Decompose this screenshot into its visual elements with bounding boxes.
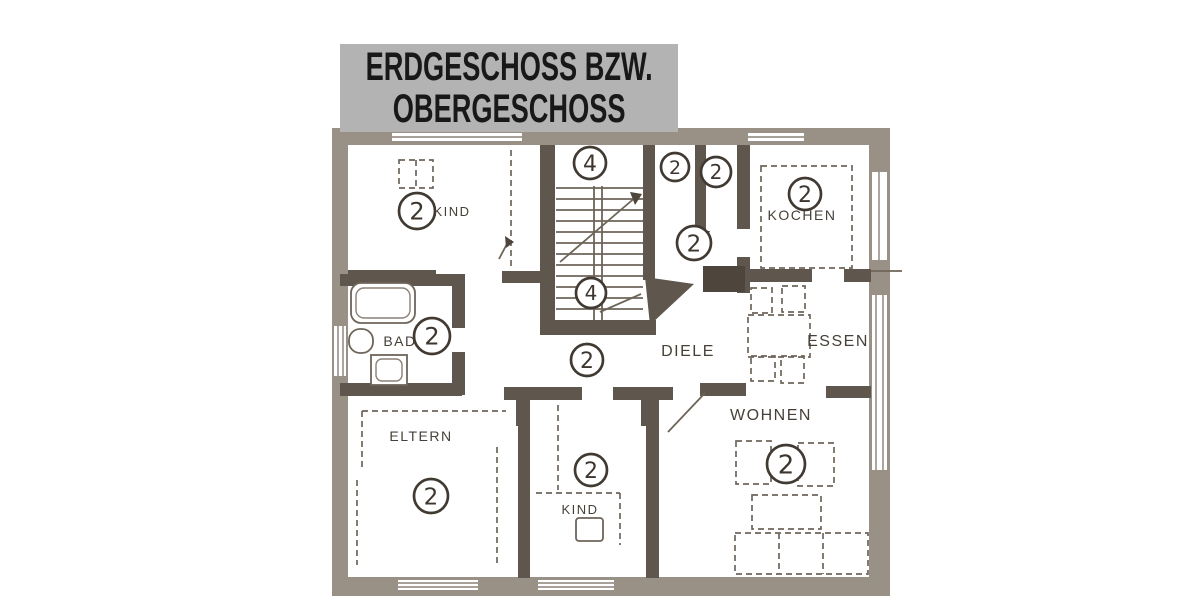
furniture-essen (748, 286, 810, 383)
marker-number: 2 (424, 484, 439, 510)
marker-number: 2 (687, 231, 702, 257)
marker-number: 2 (424, 323, 439, 351)
room-label-kind-bottom: KIND (561, 502, 598, 517)
page: KINDKOCHENBADDIELEESSENELTERNKINDWOHNEN … (0, 0, 1200, 600)
marker-eltern: 2 (414, 479, 448, 513)
furniture-kind-top (399, 160, 433, 188)
marker-number: 4 (583, 152, 597, 177)
marker-number: 2 (584, 459, 598, 484)
marker-wohnen: 2 (767, 445, 805, 483)
room-label-diele: DIELE (661, 343, 715, 360)
marker-number: 2 (778, 450, 795, 480)
room-label-kind-top: KIND (433, 204, 470, 219)
room-label-essen: ESSEN (807, 333, 869, 350)
marker-number: 2 (580, 349, 594, 374)
marker-number: 2 (710, 160, 723, 184)
marker-number: 2 (409, 198, 424, 226)
room-label-eltern: ELTERN (389, 428, 452, 444)
marker-hall: 2 (677, 226, 711, 260)
marker-bad: 2 (414, 318, 450, 354)
title-line-1: ERDGESCHOSS BZW. (365, 46, 652, 88)
marker-stairs-top: 4 (574, 147, 606, 179)
marker-number: 2 (798, 183, 812, 208)
marker-kochen: 2 (789, 178, 821, 210)
room-label-wohnen: WOHNEN (730, 407, 812, 424)
title-banner: ERDGESCHOSS BZW. OBERGESCHOSS (340, 44, 678, 132)
marker-number: 4 (585, 281, 598, 305)
room-label-bad: BAD (383, 333, 416, 349)
marker-stairs-bottom: 4 (576, 278, 606, 308)
marker-diele: 2 (571, 344, 603, 376)
marker-wc-right: 2 (701, 157, 731, 187)
title-line-2: OBERGESCHOSS (393, 88, 626, 130)
marker-kind-bottom: 2 (575, 454, 607, 486)
marker-kind-top: 2 (399, 193, 435, 229)
marker-number: 2 (669, 157, 681, 179)
marker-wc-left: 2 (661, 153, 689, 181)
